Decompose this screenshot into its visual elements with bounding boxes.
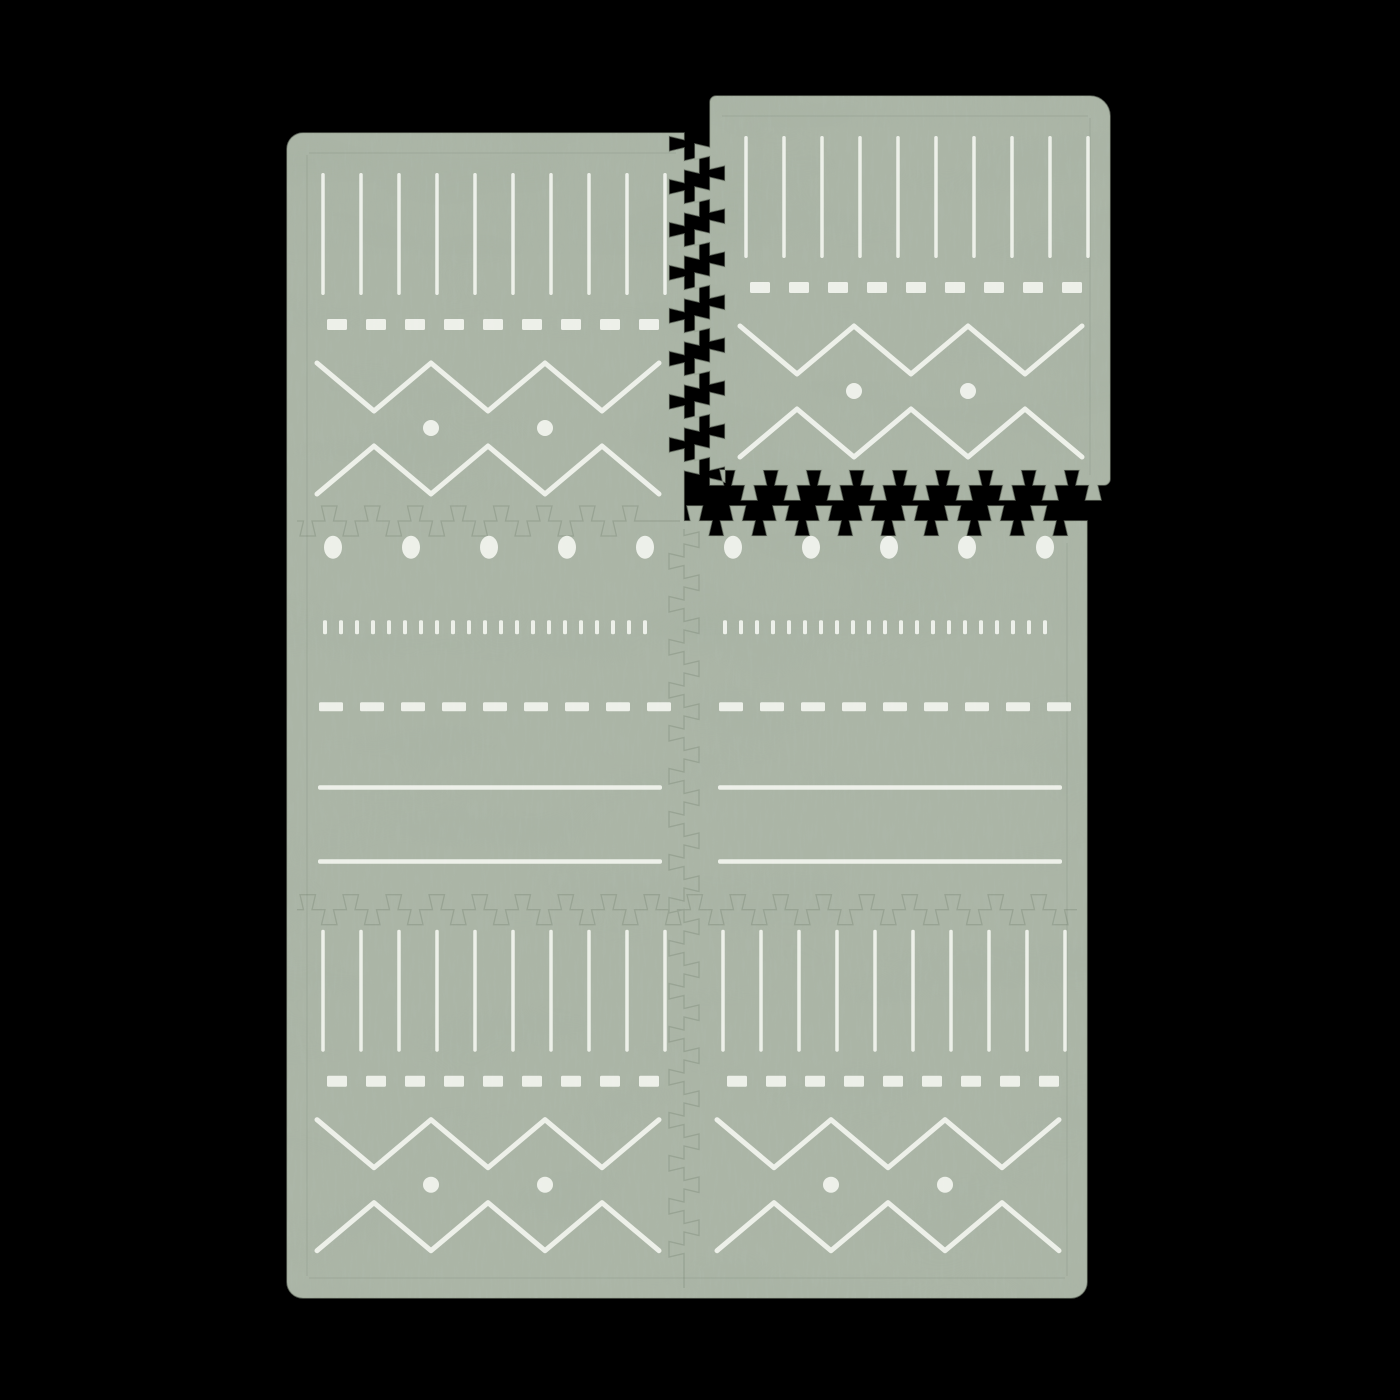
tick-mark [467, 620, 471, 634]
tick-mark [755, 620, 759, 634]
vertical-line-mark [663, 930, 667, 1052]
tick-mark [1027, 620, 1031, 634]
dash-mark [442, 702, 466, 711]
dash-mark [924, 702, 948, 711]
dash-mark [906, 282, 926, 293]
vertical-line-mark [473, 173, 477, 295]
diamond-dot [960, 383, 976, 399]
solid-line-mark [718, 785, 1062, 790]
tick-mark [419, 620, 423, 634]
dash-mark [867, 282, 887, 293]
dash-mark [789, 282, 809, 293]
tick-mark [883, 620, 887, 634]
dash-mark [805, 1076, 825, 1087]
vertical-line-mark [435, 173, 439, 295]
diamond-dot [846, 383, 862, 399]
vertical-line-mark [972, 136, 976, 258]
vertical-line-mark [397, 173, 401, 295]
tick-mark [803, 620, 807, 634]
dash-mark [600, 1076, 620, 1087]
big-dot [802, 536, 820, 559]
big-dot [1036, 536, 1054, 559]
vertical-line-mark [911, 930, 915, 1052]
dash-mark [524, 702, 548, 711]
dash-mark [1039, 1076, 1059, 1087]
dash-mark [606, 702, 630, 711]
vertical-line-mark [835, 930, 839, 1052]
dash-mark [319, 702, 343, 711]
vertical-line-mark [987, 930, 991, 1052]
dash-mark [600, 319, 620, 330]
tick-mark [931, 620, 935, 634]
tick-mark [867, 620, 871, 634]
big-dot [636, 536, 654, 559]
dash-mark [565, 702, 589, 711]
tick-mark [787, 620, 791, 634]
dash-mark [522, 1076, 542, 1087]
vertical-line-mark [625, 930, 629, 1052]
vertical-line-mark [744, 136, 748, 258]
dash-mark [922, 1076, 942, 1087]
dash-mark [1047, 702, 1071, 711]
tick-mark [483, 620, 487, 634]
big-dot [958, 536, 976, 559]
vertical-line-mark [896, 136, 900, 258]
tick-mark [915, 620, 919, 634]
tick-mark [643, 620, 647, 634]
tick-mark [371, 620, 375, 634]
solid-line-mark [718, 859, 1062, 864]
dash-mark [965, 702, 989, 711]
vertical-line-mark [797, 930, 801, 1052]
tick-mark [611, 620, 615, 634]
big-dot [480, 536, 498, 559]
vertical-line-mark [1063, 930, 1067, 1052]
vertical-line-mark [321, 173, 325, 295]
vertical-line-mark [359, 930, 363, 1052]
dash-mark [444, 1076, 464, 1087]
solid-line-mark [318, 785, 662, 790]
solid-line-mark [318, 859, 662, 864]
dash-mark [883, 1076, 903, 1087]
tick-mark [947, 620, 951, 634]
vertical-line-mark [587, 930, 591, 1052]
dash-mark [522, 319, 542, 330]
vertical-line-mark [1048, 136, 1052, 258]
dash-mark [405, 1076, 425, 1087]
vertical-line-mark [473, 930, 477, 1052]
tick-mark [771, 620, 775, 634]
tick-mark [403, 620, 407, 634]
dash-mark [750, 282, 770, 293]
dash-mark [483, 319, 503, 330]
dash-mark [842, 702, 866, 711]
vertical-line-mark [759, 930, 763, 1052]
dash-mark [483, 1076, 503, 1087]
dash-mark [1023, 282, 1043, 293]
foam-texture [0, 0, 1400, 1400]
dash-mark [401, 702, 425, 711]
tick-mark [387, 620, 391, 634]
vertical-line-mark [721, 930, 725, 1052]
vertical-line-mark [820, 136, 824, 258]
tick-mark [323, 620, 327, 634]
big-dot [324, 536, 342, 559]
dash-mark [639, 1076, 659, 1087]
tick-mark [595, 620, 599, 634]
dash-mark [639, 319, 659, 330]
vertical-line-mark [511, 930, 515, 1052]
vertical-line-mark [397, 930, 401, 1052]
tick-mark [819, 620, 823, 634]
diamond-dot [537, 420, 553, 436]
tick-mark [963, 620, 967, 634]
dash-mark [1000, 1076, 1020, 1087]
play-mat-graphic [0, 0, 1400, 1400]
tick-mark [547, 620, 551, 634]
dash-mark [405, 319, 425, 330]
tick-mark [995, 620, 999, 634]
vertical-line-mark [549, 930, 553, 1052]
vertical-line-mark [1025, 930, 1029, 1052]
tick-mark [1011, 620, 1015, 634]
tick-mark [739, 620, 743, 634]
tick-mark [579, 620, 583, 634]
dash-mark [366, 319, 386, 330]
diamond-dot [537, 1177, 553, 1193]
dash-mark [561, 319, 581, 330]
vertical-line-mark [359, 173, 363, 295]
dash-mark [727, 1076, 747, 1087]
dash-mark [719, 702, 743, 711]
tick-mark [835, 620, 839, 634]
tick-mark [979, 620, 983, 634]
big-dot [402, 536, 420, 559]
dash-mark [844, 1076, 864, 1087]
dash-mark [984, 282, 1004, 293]
vertical-line-mark [549, 173, 553, 295]
tick-mark [355, 620, 359, 634]
vertical-line-mark [625, 173, 629, 295]
vertical-line-mark [873, 930, 877, 1052]
tick-mark [899, 620, 903, 634]
vertical-line-mark [511, 173, 515, 295]
vertical-line-mark [949, 930, 953, 1052]
dash-mark [801, 702, 825, 711]
dash-mark [760, 702, 784, 711]
vertical-line-mark [587, 173, 591, 295]
big-dot [880, 536, 898, 559]
dash-mark [766, 1076, 786, 1087]
dash-mark [366, 1076, 386, 1087]
dash-mark [483, 702, 507, 711]
vertical-line-mark [663, 173, 667, 295]
diamond-dot [423, 1177, 439, 1193]
dash-mark [647, 702, 671, 711]
tick-mark [515, 620, 519, 634]
big-dot [558, 536, 576, 559]
dash-mark [1062, 282, 1082, 293]
diamond-dot [937, 1177, 953, 1193]
big-dot [724, 536, 742, 559]
tick-mark [851, 620, 855, 634]
dash-mark [360, 702, 384, 711]
tick-mark [531, 620, 535, 634]
vertical-line-mark [782, 136, 786, 258]
dash-mark [883, 702, 907, 711]
dash-mark [945, 282, 965, 293]
tick-mark [499, 620, 503, 634]
tick-mark [723, 620, 727, 634]
dash-mark [961, 1076, 981, 1087]
tick-mark [451, 620, 455, 634]
diamond-dot [823, 1177, 839, 1193]
vertical-line-mark [321, 930, 325, 1052]
dash-mark [444, 319, 464, 330]
vertical-line-mark [435, 930, 439, 1052]
tick-mark [1043, 620, 1047, 634]
dash-mark [828, 282, 848, 293]
diamond-dot [423, 420, 439, 436]
dash-mark [327, 319, 347, 330]
vertical-line-mark [1010, 136, 1014, 258]
dash-mark [561, 1076, 581, 1087]
tick-mark [435, 620, 439, 634]
vertical-line-mark [858, 136, 862, 258]
tick-mark [563, 620, 567, 634]
dash-mark [1006, 702, 1030, 711]
product-image [0, 0, 1400, 1400]
tick-mark [627, 620, 631, 634]
dash-mark [327, 1076, 347, 1087]
tick-mark [339, 620, 343, 634]
vertical-line-mark [1086, 136, 1090, 258]
vertical-line-mark [934, 136, 938, 258]
